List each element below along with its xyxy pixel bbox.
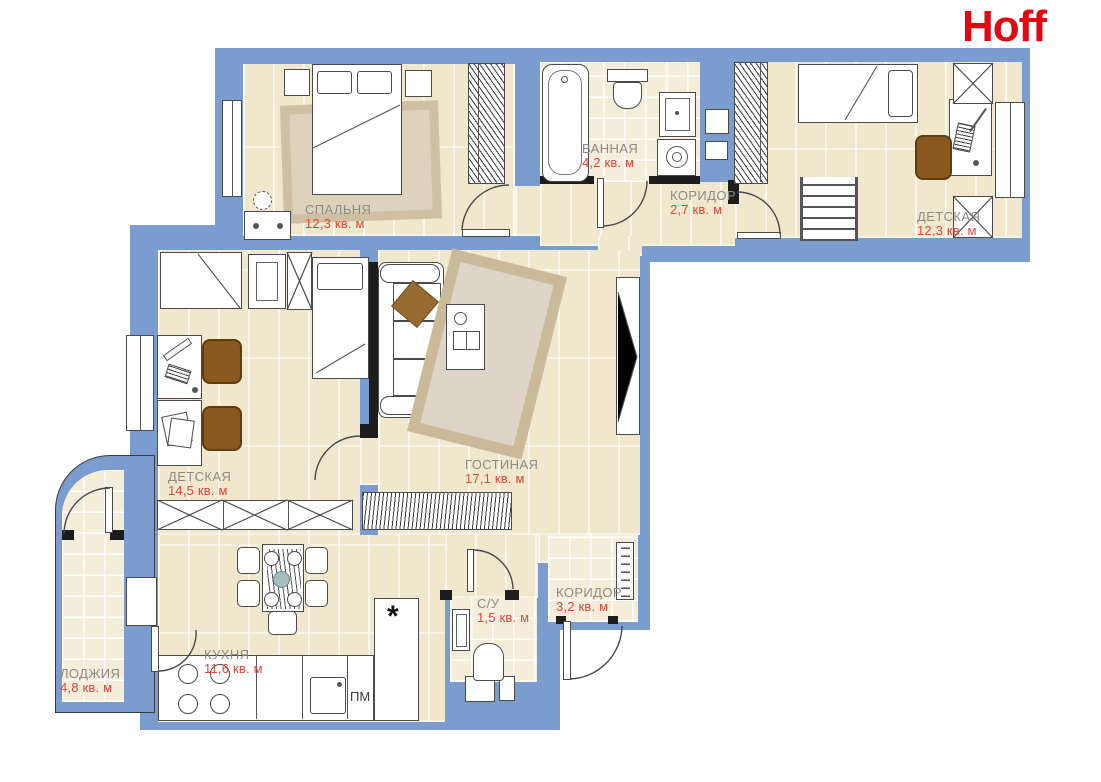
kids-right-wardrobe: [734, 62, 768, 184]
window-mullion: [1010, 103, 1011, 197]
loggia-inner-door-leaf: [105, 487, 113, 533]
hoff-logo: Hoff: [962, 2, 1046, 52]
nightstand: [405, 70, 432, 97]
counter-divider: [302, 656, 303, 719]
desk: [157, 335, 202, 399]
kids-left-wardrobe: [160, 252, 242, 309]
bedroom-window: [222, 100, 242, 197]
kitchen-chair: [268, 611, 297, 635]
tap-icon: [675, 111, 679, 115]
kids-left-door-opening: [360, 436, 378, 485]
label-wc: С/У 1,5 кв. м: [477, 597, 529, 625]
pen-icon: [969, 108, 987, 132]
corridor-opening: [538, 535, 548, 563]
console-divider: [466, 332, 467, 349]
washbasin: [659, 92, 696, 137]
kitchen-chair: [237, 547, 260, 574]
bed-pillow: [317, 71, 352, 94]
tv-accent-wall: [369, 262, 378, 438]
vent-shaft: [705, 141, 728, 160]
sideboard: [362, 492, 512, 530]
tap-icon: [337, 682, 342, 687]
label-kids-right: ДЕТСКАЯ 12,3 кв. м: [917, 210, 980, 238]
wardrobe-module: [953, 63, 993, 104]
kitchen-chair: [305, 547, 328, 574]
floor-plan: СПАЛЬНЯ 12,3 кв. м ВАННАЯ 4,2 кв. м КОРИ…: [0, 0, 1101, 782]
bathroom-door-leaf: [597, 178, 604, 228]
loggia-door-leaf: [151, 626, 159, 672]
entrance-cap-right: [608, 616, 618, 624]
plate-icon: [264, 592, 279, 607]
toilet: [613, 82, 642, 109]
wardrobe-divider: [223, 501, 224, 529]
bed-pillow: [888, 70, 913, 117]
drum-inner-icon: [672, 152, 682, 162]
loggia-divider-cap-left: [62, 530, 74, 540]
kitchen-chair: [305, 580, 328, 607]
desk-chair: [202, 339, 242, 384]
crib: [248, 254, 286, 309]
wc-door-leaf: [467, 549, 474, 592]
bathtub-inner: [548, 70, 582, 175]
sofa-armrest: [380, 264, 440, 283]
burner-icon: [178, 694, 198, 714]
console-icon: [453, 331, 480, 350]
mouse-icon: [973, 160, 979, 166]
monitor-icon: [163, 338, 192, 362]
plate-icon: [264, 551, 279, 566]
burner-icon: [210, 694, 230, 714]
entrance-door-leaf: [563, 621, 571, 680]
fridge-symbol: *: [387, 600, 399, 634]
kids-right-window: [995, 102, 1025, 198]
kitchen-chair: [237, 580, 260, 607]
wc-toilet: [473, 643, 504, 681]
knob-icon: [277, 223, 283, 229]
kids-right-door-leaf: [737, 232, 781, 239]
vent-shaft: [705, 109, 729, 134]
label-corridor-entry: КОРИДОР 3,2 кв. м: [556, 586, 622, 614]
cup-icon: [454, 312, 467, 325]
knob-icon: [253, 223, 259, 229]
kitchen-sink: [310, 677, 346, 714]
kids-door-wall-cap: [360, 424, 370, 438]
wall-bars-ladder: [800, 177, 858, 241]
bed-pillow: [357, 71, 392, 94]
bathroom-wall-cap-right: [649, 176, 700, 184]
bed-pillow: [317, 263, 363, 290]
stool: [253, 191, 272, 210]
desk: [157, 400, 202, 466]
wardrobe-divider: [478, 64, 479, 182]
mouse-icon: [192, 387, 198, 393]
label-bedroom: СПАЛЬНЯ 12,3 кв. м: [305, 203, 371, 231]
dresser: [244, 211, 291, 240]
desk-chair: [202, 406, 242, 451]
label-corridor-top: КОРИДОР 2,7 кв. м: [670, 189, 736, 217]
keyboard-icon: [164, 364, 191, 385]
burner-icon: [178, 664, 198, 684]
label-loggia: ЛОДЖИЯ 4,8 кв. м: [60, 667, 120, 695]
dishwasher-label: ПМ: [350, 689, 370, 704]
label-bathroom: ВАННАЯ 4,2 кв. м: [582, 142, 638, 170]
door-arc-entrance: [570, 626, 622, 679]
wc-washbasin: [452, 609, 470, 651]
coffee-table: [446, 304, 485, 370]
nightstand: [284, 69, 310, 96]
counter-divider: [347, 656, 348, 719]
label-living: ГОСТИНАЯ 17,1 кв. м: [465, 458, 538, 486]
kids-left-window: [126, 335, 154, 431]
bedroom-door-leaf: [462, 229, 510, 237]
drain-icon: [561, 76, 568, 83]
loggia-window: [126, 577, 157, 626]
paper-icon: [167, 417, 195, 448]
desk-chair: [915, 135, 952, 180]
wc-wall-cap-left: [440, 590, 452, 600]
basin-inner: [456, 614, 467, 647]
window-mullion: [140, 336, 141, 430]
kitchen-hall-floor: [445, 535, 538, 598]
wardrobe-divider: [288, 501, 289, 529]
wardrobe-divider: [760, 63, 761, 182]
crib-inner: [256, 262, 278, 301]
bedroom-wardrobe: [468, 63, 505, 184]
plate-icon: [287, 592, 302, 607]
low-wardrobe-row: [157, 500, 353, 530]
bedroom-door-opening: [515, 186, 540, 236]
toilet-tank: [607, 69, 648, 82]
living-window: [616, 277, 640, 435]
wardrobe-module: [287, 252, 312, 310]
label-kitchen: КУХНЯ 11,6 кв. м: [204, 648, 263, 676]
center-dish-icon: [273, 571, 290, 588]
window-mullion: [232, 101, 233, 196]
radiator-ribs: [621, 546, 630, 597]
washing-machine: [657, 139, 696, 176]
label-kids-left: ДЕТСКАЯ 14,5 кв. м: [168, 470, 231, 498]
desk: [949, 99, 992, 176]
plate-icon: [287, 551, 302, 566]
